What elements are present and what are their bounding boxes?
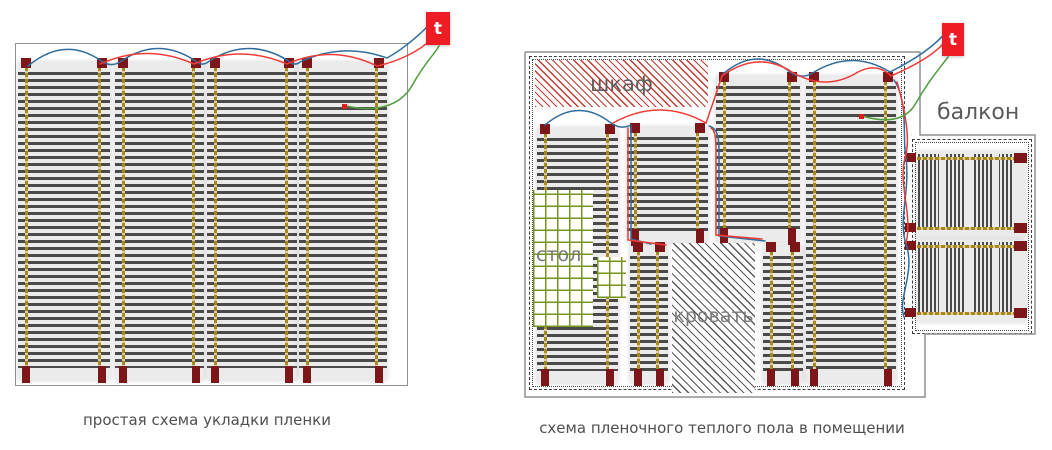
wardrobe-label: шкаф: [590, 72, 653, 96]
copper-bus-bar: [723, 81, 726, 235]
copper-bus-bar: [770, 251, 773, 376]
wire-connector: [375, 366, 383, 383]
balcony-label: балкон: [937, 100, 1019, 125]
left-temp-sensor-dot: [342, 104, 347, 109]
wire-connector: [884, 369, 892, 386]
film-strip: [18, 62, 110, 380]
copper-bus-bar: [375, 67, 378, 373]
copper-bus-bar: [791, 251, 794, 376]
copper-bus-bar: [813, 81, 816, 376]
wire-connector: [695, 123, 705, 133]
film-stripes: [763, 256, 803, 371]
wire-connector: [655, 242, 665, 252]
wire-connector: [767, 369, 775, 386]
film-strip-horizontal: [916, 240, 1026, 322]
wire-connector: [1014, 223, 1027, 233]
wire-connector: [1014, 241, 1027, 251]
wire-connector: [790, 242, 800, 252]
bed-area: кровать: [672, 243, 755, 393]
copper-bus-bar: [192, 67, 195, 373]
wire-connector: [791, 369, 799, 386]
wire-connector: [374, 58, 384, 68]
wire-connector: [633, 242, 643, 252]
left-thermostat: t: [426, 12, 450, 45]
wire-connector: [540, 124, 550, 134]
table-label: стол: [536, 244, 581, 266]
copper-bus-bar: [917, 227, 1017, 230]
wire-connector: [656, 369, 664, 386]
copper-bus-bar: [122, 67, 125, 373]
wire-connector: [211, 366, 219, 383]
wire-connector: [787, 72, 797, 82]
wire-connector: [98, 366, 106, 383]
wire-connector: [21, 58, 31, 68]
wire-connector: [905, 308, 916, 317]
wire-connector: [605, 124, 615, 134]
copper-bus-bar: [917, 157, 1017, 160]
film-strip: [806, 76, 896, 383]
copper-bus-bar: [788, 81, 791, 235]
wire-connector: [719, 72, 729, 82]
bed-label: кровать: [672, 305, 755, 327]
film-stripes: [918, 154, 1014, 228]
film-stripes: [18, 72, 110, 368]
film-strip: [716, 76, 800, 242]
copper-bus-bar: [285, 67, 288, 373]
left-diagram-caption: простая схема укладки пленки: [7, 411, 407, 429]
film-stripes: [918, 242, 1014, 313]
film-stripes: [806, 86, 896, 371]
wire-connector: [1014, 308, 1027, 318]
wire-connector: [905, 153, 916, 162]
film-stripes: [115, 72, 204, 368]
wire-connector: [883, 72, 893, 82]
film-strip: [299, 62, 387, 380]
copper-bus-bar: [637, 251, 640, 376]
right-diagram-caption: схема пленочного теплого пола в помещени…: [522, 419, 922, 437]
wire-connector: [905, 223, 916, 232]
copper-bus-bar: [917, 312, 1017, 315]
film-stripes: [299, 72, 387, 368]
film-strip: [763, 246, 803, 383]
copper-bus-bar: [917, 245, 1017, 248]
wire-connector: [1014, 153, 1027, 163]
wire-connector: [809, 72, 819, 82]
film-strip-horizontal: [916, 152, 1026, 237]
wire-connector: [634, 369, 642, 386]
wire-connector: [22, 366, 30, 383]
room-thermostat: t: [942, 23, 964, 56]
copper-bus-bar: [884, 81, 887, 376]
wire-connector: [191, 58, 201, 68]
wire-connector: [97, 58, 107, 68]
wire-connector: [303, 366, 311, 383]
copper-bus-bar: [606, 133, 609, 376]
wire-connector: [119, 366, 127, 383]
film-strip: [207, 62, 297, 380]
copper-bus-bar: [634, 132, 637, 236]
wardrobe-area: шкаф: [535, 60, 708, 107]
film-strip: [627, 127, 708, 243]
film-strip: [115, 62, 204, 380]
wire-connector: [606, 369, 614, 386]
copper-bus-bar: [214, 67, 217, 373]
wire-connector: [905, 241, 916, 250]
film-strip: [630, 246, 668, 383]
table-area-patch: [597, 257, 626, 298]
wire-connector: [284, 58, 294, 68]
copper-bus-bar: [696, 132, 699, 236]
wire-connector: [302, 58, 312, 68]
film-stripes: [630, 256, 668, 371]
wire-connector: [766, 242, 776, 252]
wire-connector: [192, 366, 200, 383]
room-temp-sensor-dot: [859, 114, 864, 119]
wire-connector: [541, 369, 549, 386]
copper-bus-bar: [25, 67, 28, 373]
copper-bus-bar: [306, 67, 309, 373]
wire-connector: [118, 58, 128, 68]
copper-bus-bar: [656, 251, 659, 376]
wire-connector: [210, 58, 220, 68]
wire-connector: [285, 366, 293, 383]
wire-connector: [810, 369, 818, 386]
wire-connector: [630, 123, 640, 133]
copper-bus-bar: [98, 67, 101, 373]
film-stripes: [207, 72, 297, 368]
